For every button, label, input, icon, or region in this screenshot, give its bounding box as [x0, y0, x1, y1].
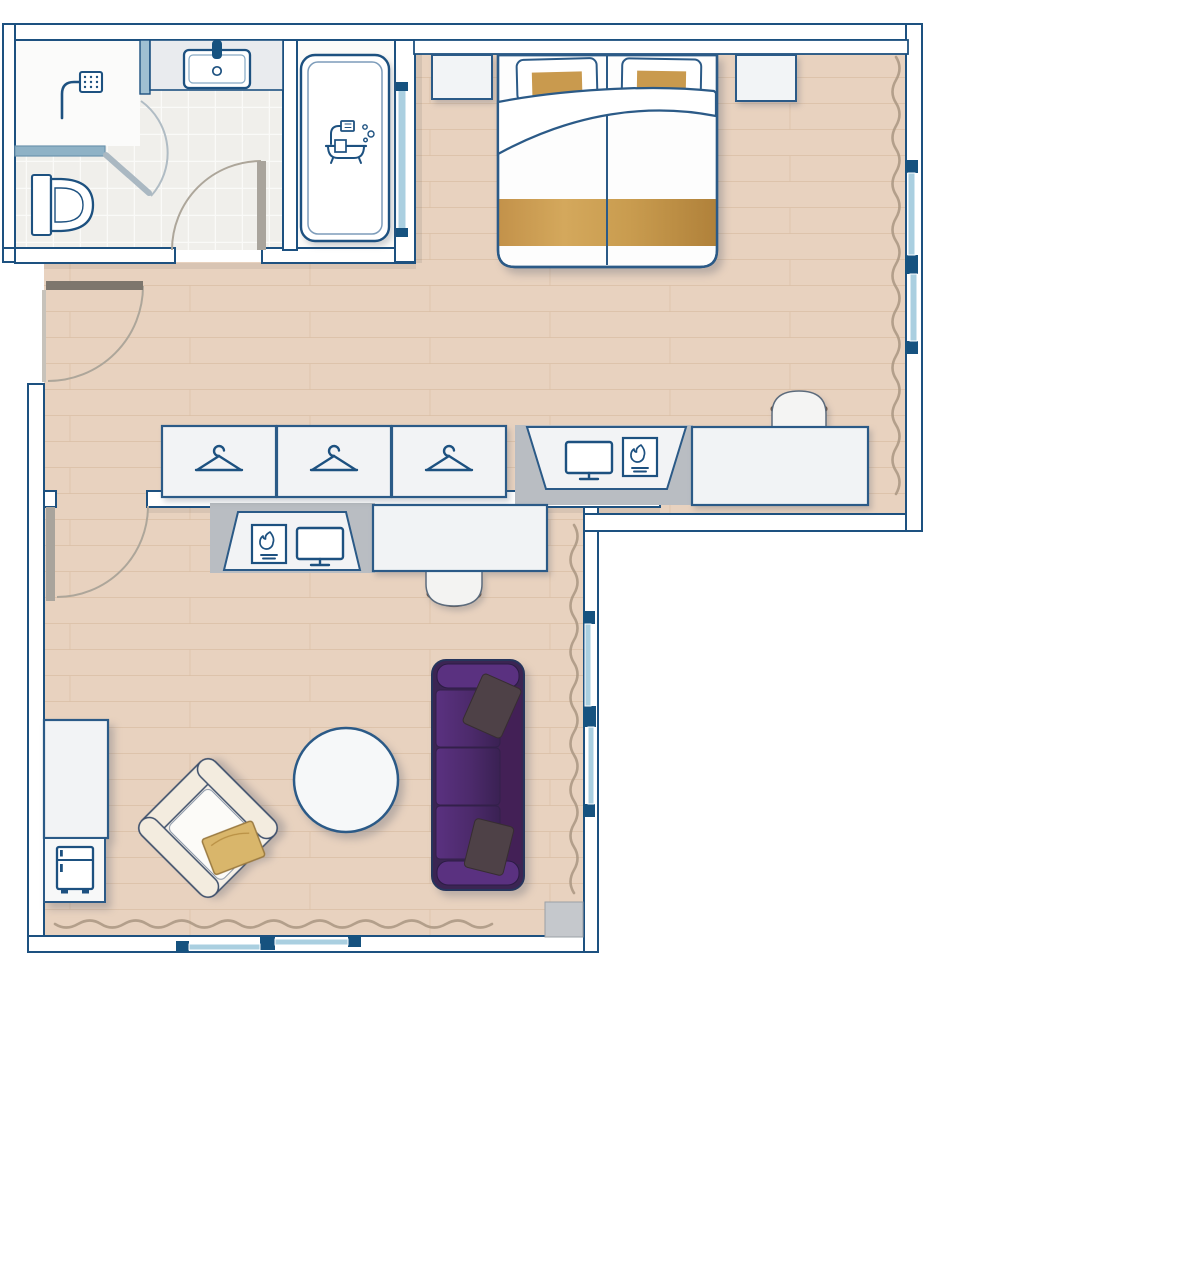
wardrobe-unit — [162, 426, 276, 497]
wall-bathtub-room-left — [283, 40, 297, 250]
tv-icon — [297, 528, 343, 565]
sofa — [432, 660, 524, 890]
cabinet-counter — [44, 720, 108, 838]
desk-chair — [772, 391, 826, 430]
wardrobe-unit — [277, 426, 391, 497]
headboard-ledge — [414, 40, 908, 54]
desk — [373, 505, 547, 571]
nightstand-left — [432, 55, 492, 99]
living-door-leaf — [46, 507, 55, 601]
window-pane — [189, 944, 260, 950]
tv-icon — [566, 442, 612, 479]
wardrobe-units — [162, 426, 506, 497]
nightstand-right — [736, 55, 796, 101]
window-pane — [585, 624, 591, 706]
minibar-icon — [57, 847, 93, 894]
wall-divider-pier — [44, 491, 56, 507]
desk — [692, 427, 868, 505]
shower-glass-partition — [140, 40, 150, 94]
window-pane — [588, 727, 594, 804]
sink-vanity — [150, 40, 283, 90]
entrance-threshold — [42, 290, 46, 382]
coffee-table — [294, 728, 398, 832]
desk-chair — [426, 567, 482, 606]
bathtub-room-glass — [398, 88, 406, 229]
double-bed — [498, 55, 717, 267]
window-pane — [275, 939, 348, 945]
floor-plan-svg — [0, 0, 1200, 1284]
shower-half-wall — [15, 146, 105, 156]
fireplace-icon — [623, 438, 657, 476]
minibar-cabinet — [44, 720, 108, 902]
wall-top — [3, 24, 920, 40]
wall-bathroom-bottom-left — [15, 248, 175, 263]
shower-floor — [15, 40, 140, 146]
bathroom-door-leaf — [257, 161, 266, 250]
window-pane — [910, 274, 917, 341]
wall-left-lower — [28, 384, 44, 950]
wall-bedroom-bottom — [584, 514, 922, 531]
faucet-icon — [212, 40, 222, 59]
bathtub — [301, 55, 389, 241]
floor-plan — [0, 0, 1200, 1284]
fireplace-icon — [252, 525, 286, 563]
sofa-cushion — [436, 748, 500, 805]
window-pane — [908, 173, 915, 255]
corner-block — [545, 902, 583, 937]
wall-left-upper — [3, 24, 15, 252]
bedroom-media-niche — [527, 427, 686, 489]
wardrobe-unit — [392, 426, 506, 497]
toilet-icon — [32, 175, 93, 235]
floor-shadow — [415, 54, 422, 263]
living-media-niche — [224, 512, 360, 570]
entrance-door-leaf — [46, 281, 143, 290]
